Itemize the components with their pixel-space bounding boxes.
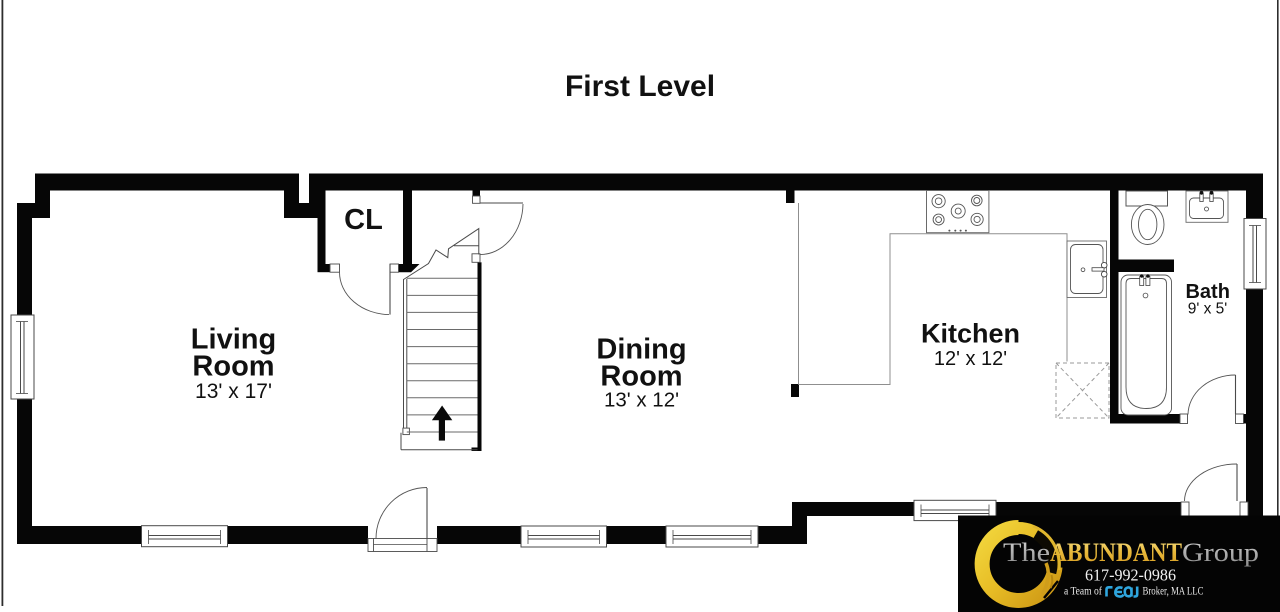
svg-text:9' x 5': 9' x 5'	[1188, 301, 1228, 318]
svg-text:617-992-0986: 617-992-0986	[1085, 566, 1176, 585]
svg-text:First Level: First Level	[565, 70, 715, 103]
svg-text:Kitchen: Kitchen	[921, 319, 1020, 349]
svg-text:CL: CL	[344, 204, 383, 236]
svg-text:Room: Room	[192, 350, 274, 382]
svg-text:13' x 12': 13' x 12'	[604, 389, 679, 412]
svg-text:13' x 17': 13' x 17'	[195, 380, 272, 403]
svg-text:Broker, MA LLC: Broker, MA LLC	[1143, 586, 1204, 598]
svg-text:Room: Room	[600, 360, 682, 392]
svg-text:a Team of: a Team of	[1064, 586, 1102, 598]
svg-text:12' x 12': 12' x 12'	[934, 348, 1007, 370]
svg-text:TheABUNDANTGroup: TheABUNDANTGroup	[1003, 537, 1259, 567]
